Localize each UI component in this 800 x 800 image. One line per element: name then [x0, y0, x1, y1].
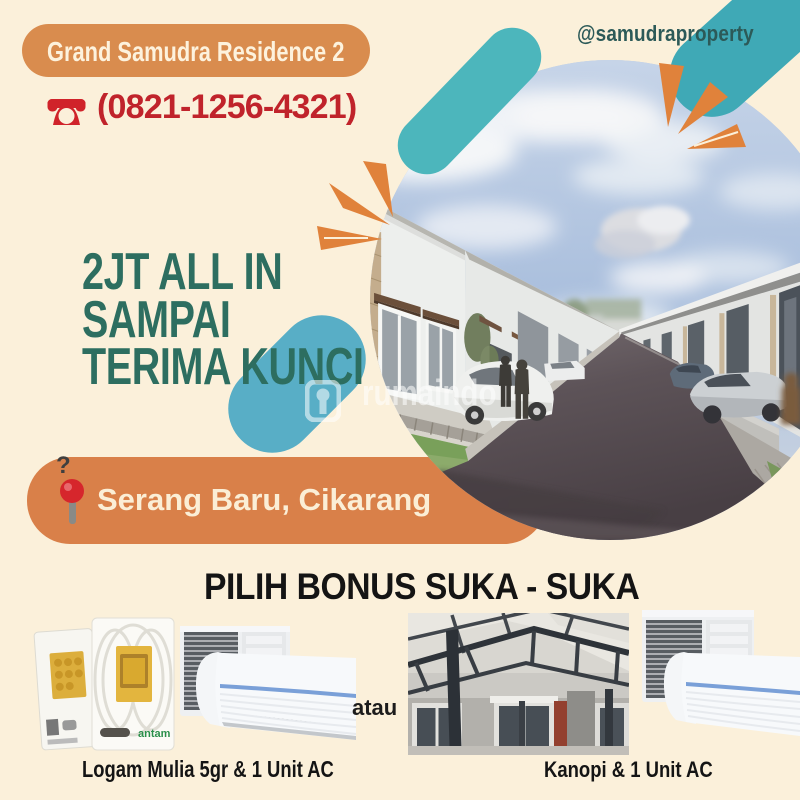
svg-text:antam: antam — [138, 728, 171, 740]
